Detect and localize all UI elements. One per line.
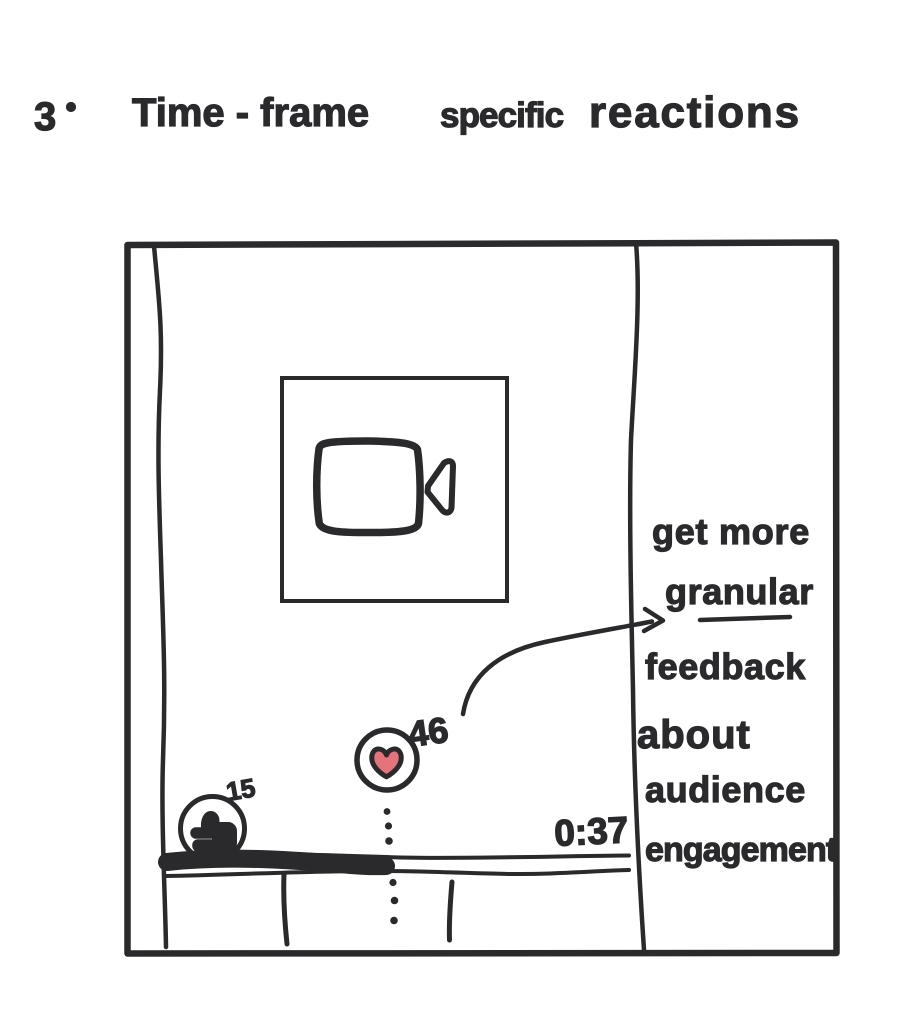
svg-text:get more: get more [652,511,810,552]
svg-text:specific: specific [440,96,564,135]
svg-text:about: about [637,713,751,757]
svg-text:3: 3 [34,95,56,139]
svg-text:audience: audience [645,769,806,810]
svg-text:reactions: reactions [589,88,801,137]
svg-text:feedback: feedback [645,646,806,687]
svg-text:Time - frame: Time - frame [132,91,369,135]
svg-text:engagement: engagement [645,831,837,869]
svg-text:0:37: 0:37 [553,809,629,854]
svg-text:granular: granular [665,571,814,612]
svg-text:15: 15 [224,772,258,807]
svg-text:46: 46 [405,709,450,755]
